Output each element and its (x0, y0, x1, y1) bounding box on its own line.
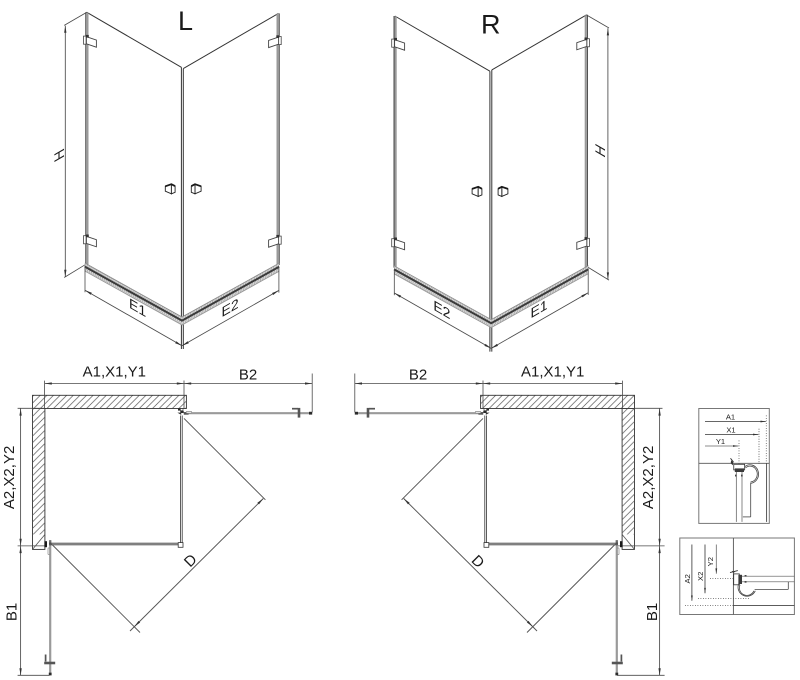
svg-text:X1: X1 (726, 425, 735, 434)
svg-text:Y2: Y2 (706, 557, 715, 566)
svg-text:R: R (481, 9, 501, 39)
svg-text:B2: B2 (409, 367, 427, 384)
svg-text:A1,X1,Y1: A1,X1,Y1 (83, 364, 146, 381)
svg-text:A1,X1,Y1: A1,X1,Y1 (521, 364, 584, 381)
svg-text:A2,X2,Y2: A2,X2,Y2 (640, 446, 657, 509)
svg-text:X2: X2 (696, 572, 705, 581)
svg-text:A2: A2 (683, 574, 692, 583)
svg-text:L: L (178, 6, 193, 36)
svg-text:B1: B1 (644, 603, 661, 621)
svg-text:B1: B1 (3, 603, 20, 621)
svg-text:Y1: Y1 (716, 437, 725, 446)
svg-text:A2,X2,Y2: A2,X2,Y2 (1, 446, 18, 509)
svg-text:B2: B2 (239, 367, 257, 384)
svg-text:A1: A1 (726, 412, 735, 421)
